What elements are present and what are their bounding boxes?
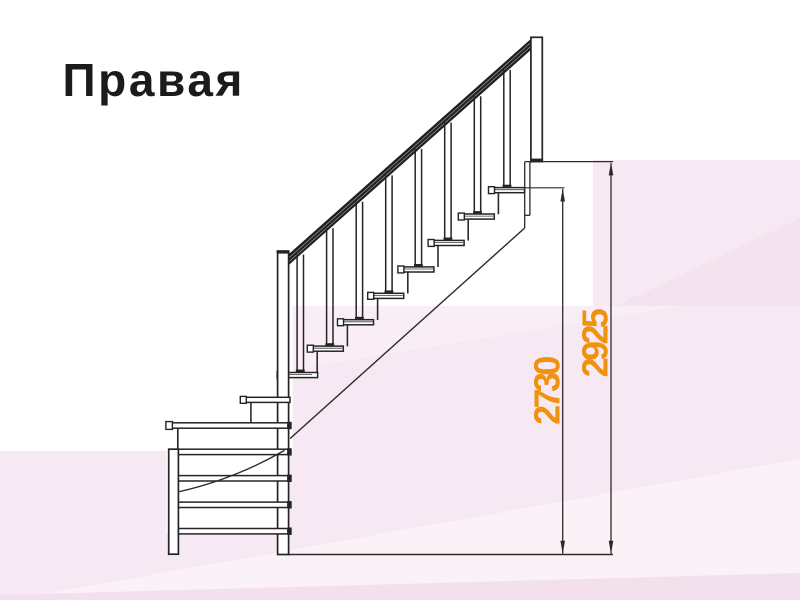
svg-text:2925: 2925: [575, 308, 616, 377]
svg-text:2730: 2730: [527, 357, 568, 425]
svg-text:Правая: Правая: [63, 54, 245, 106]
